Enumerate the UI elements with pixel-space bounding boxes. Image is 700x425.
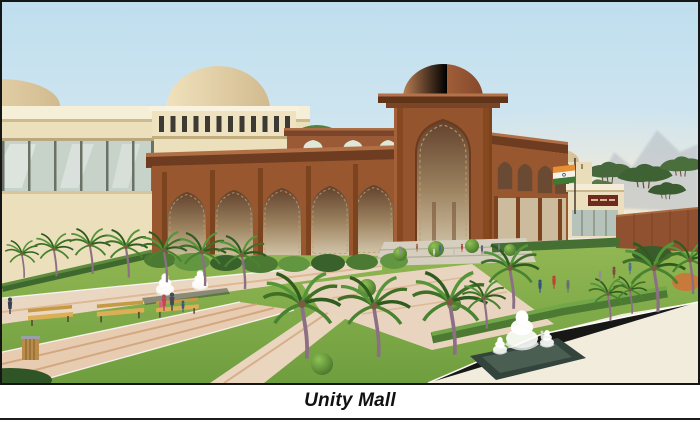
mall-scene [2,2,698,383]
glass-window-band [2,138,154,194]
boundary-wall [616,208,698,252]
shopfront-glass [572,210,618,236]
handbag [159,302,163,307]
litter-bin [21,336,40,360]
rendering-image [0,0,700,385]
figure-caption: Unity Mall [304,390,396,412]
grand-arch [416,120,470,258]
figure-caption-bar: Unity Mall [0,386,700,416]
caption-divider-line [0,418,700,420]
